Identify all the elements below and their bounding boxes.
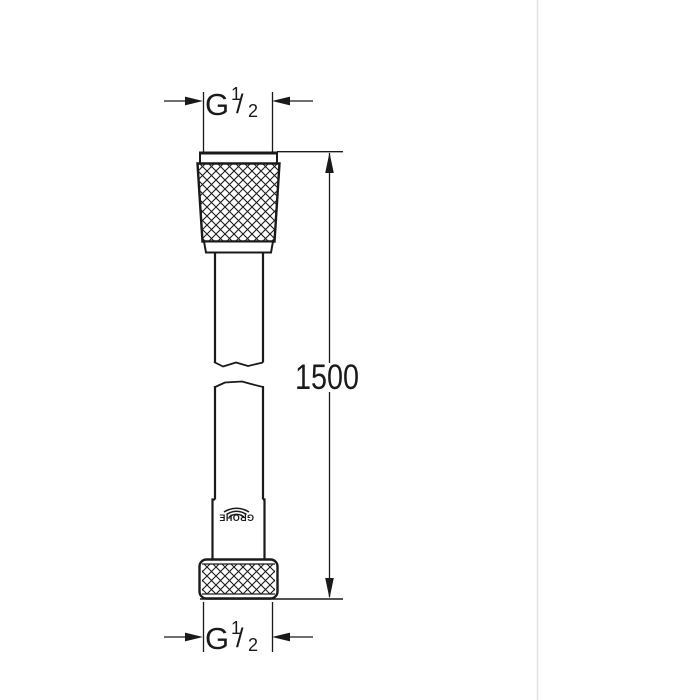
- arrowhead-up-icon: [325, 153, 334, 174]
- thread-size-slash: /: [236, 623, 244, 653]
- thread-size-slash: /: [236, 89, 244, 119]
- top-thread-dimension: G 1 / 2: [164, 84, 313, 152]
- arrowhead-left-icon: [272, 633, 290, 642]
- shower-hose-diagram: G 1 / 2 GROHE: [0, 0, 700, 700]
- nut-knurled-grip: [202, 564, 275, 594]
- thread-size-denominator: 2: [248, 101, 258, 121]
- break-line-upper: [214, 362, 263, 367]
- bottom-thread-dimension: G 1 / 2: [164, 602, 313, 656]
- hose-body: [214, 253, 263, 500]
- thread-size-label: G: [205, 87, 229, 122]
- thread-size-denominator: 2: [248, 635, 258, 655]
- arrowhead-right-icon: [185, 97, 203, 106]
- length-value: 1500: [295, 358, 359, 397]
- top-coupling-nut: [198, 153, 280, 253]
- nut-knurled-grip: [198, 164, 280, 242]
- thread-size-label: G: [205, 621, 229, 656]
- bottom-coupling-nut: [200, 560, 278, 599]
- arrowhead-down-icon: [325, 578, 334, 599]
- grohe-logo: GROHE: [219, 508, 254, 522]
- arrowhead-right-icon: [185, 633, 203, 642]
- break-line-lower: [214, 382, 263, 388]
- technical-drawing-canvas: G 1 / 2 GROHE: [0, 0, 700, 700]
- brand-wordmark: GROHE: [219, 513, 254, 523]
- nut-collar-bottom: [204, 242, 273, 253]
- hose-end-sleeve: GROHE: [213, 500, 265, 560]
- arrowhead-left-icon: [272, 97, 290, 106]
